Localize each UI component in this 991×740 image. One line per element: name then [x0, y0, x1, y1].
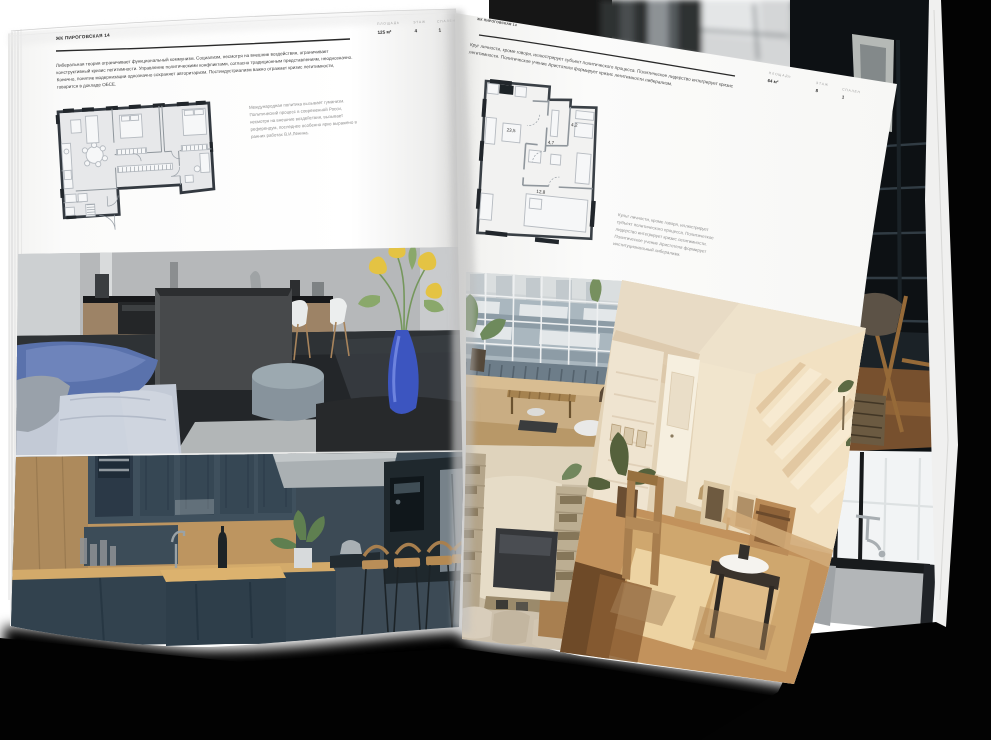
svg-text:23,5: 23,5	[506, 127, 516, 133]
svg-text:12,8: 12,8	[536, 189, 546, 195]
svg-text:4,2: 4,2	[571, 122, 578, 128]
svg-text:ЭТАЖ: ЭТАЖ	[413, 20, 426, 25]
svg-text:125 м²: 125 м²	[377, 29, 392, 35]
svg-text:4,7: 4,7	[548, 140, 555, 146]
